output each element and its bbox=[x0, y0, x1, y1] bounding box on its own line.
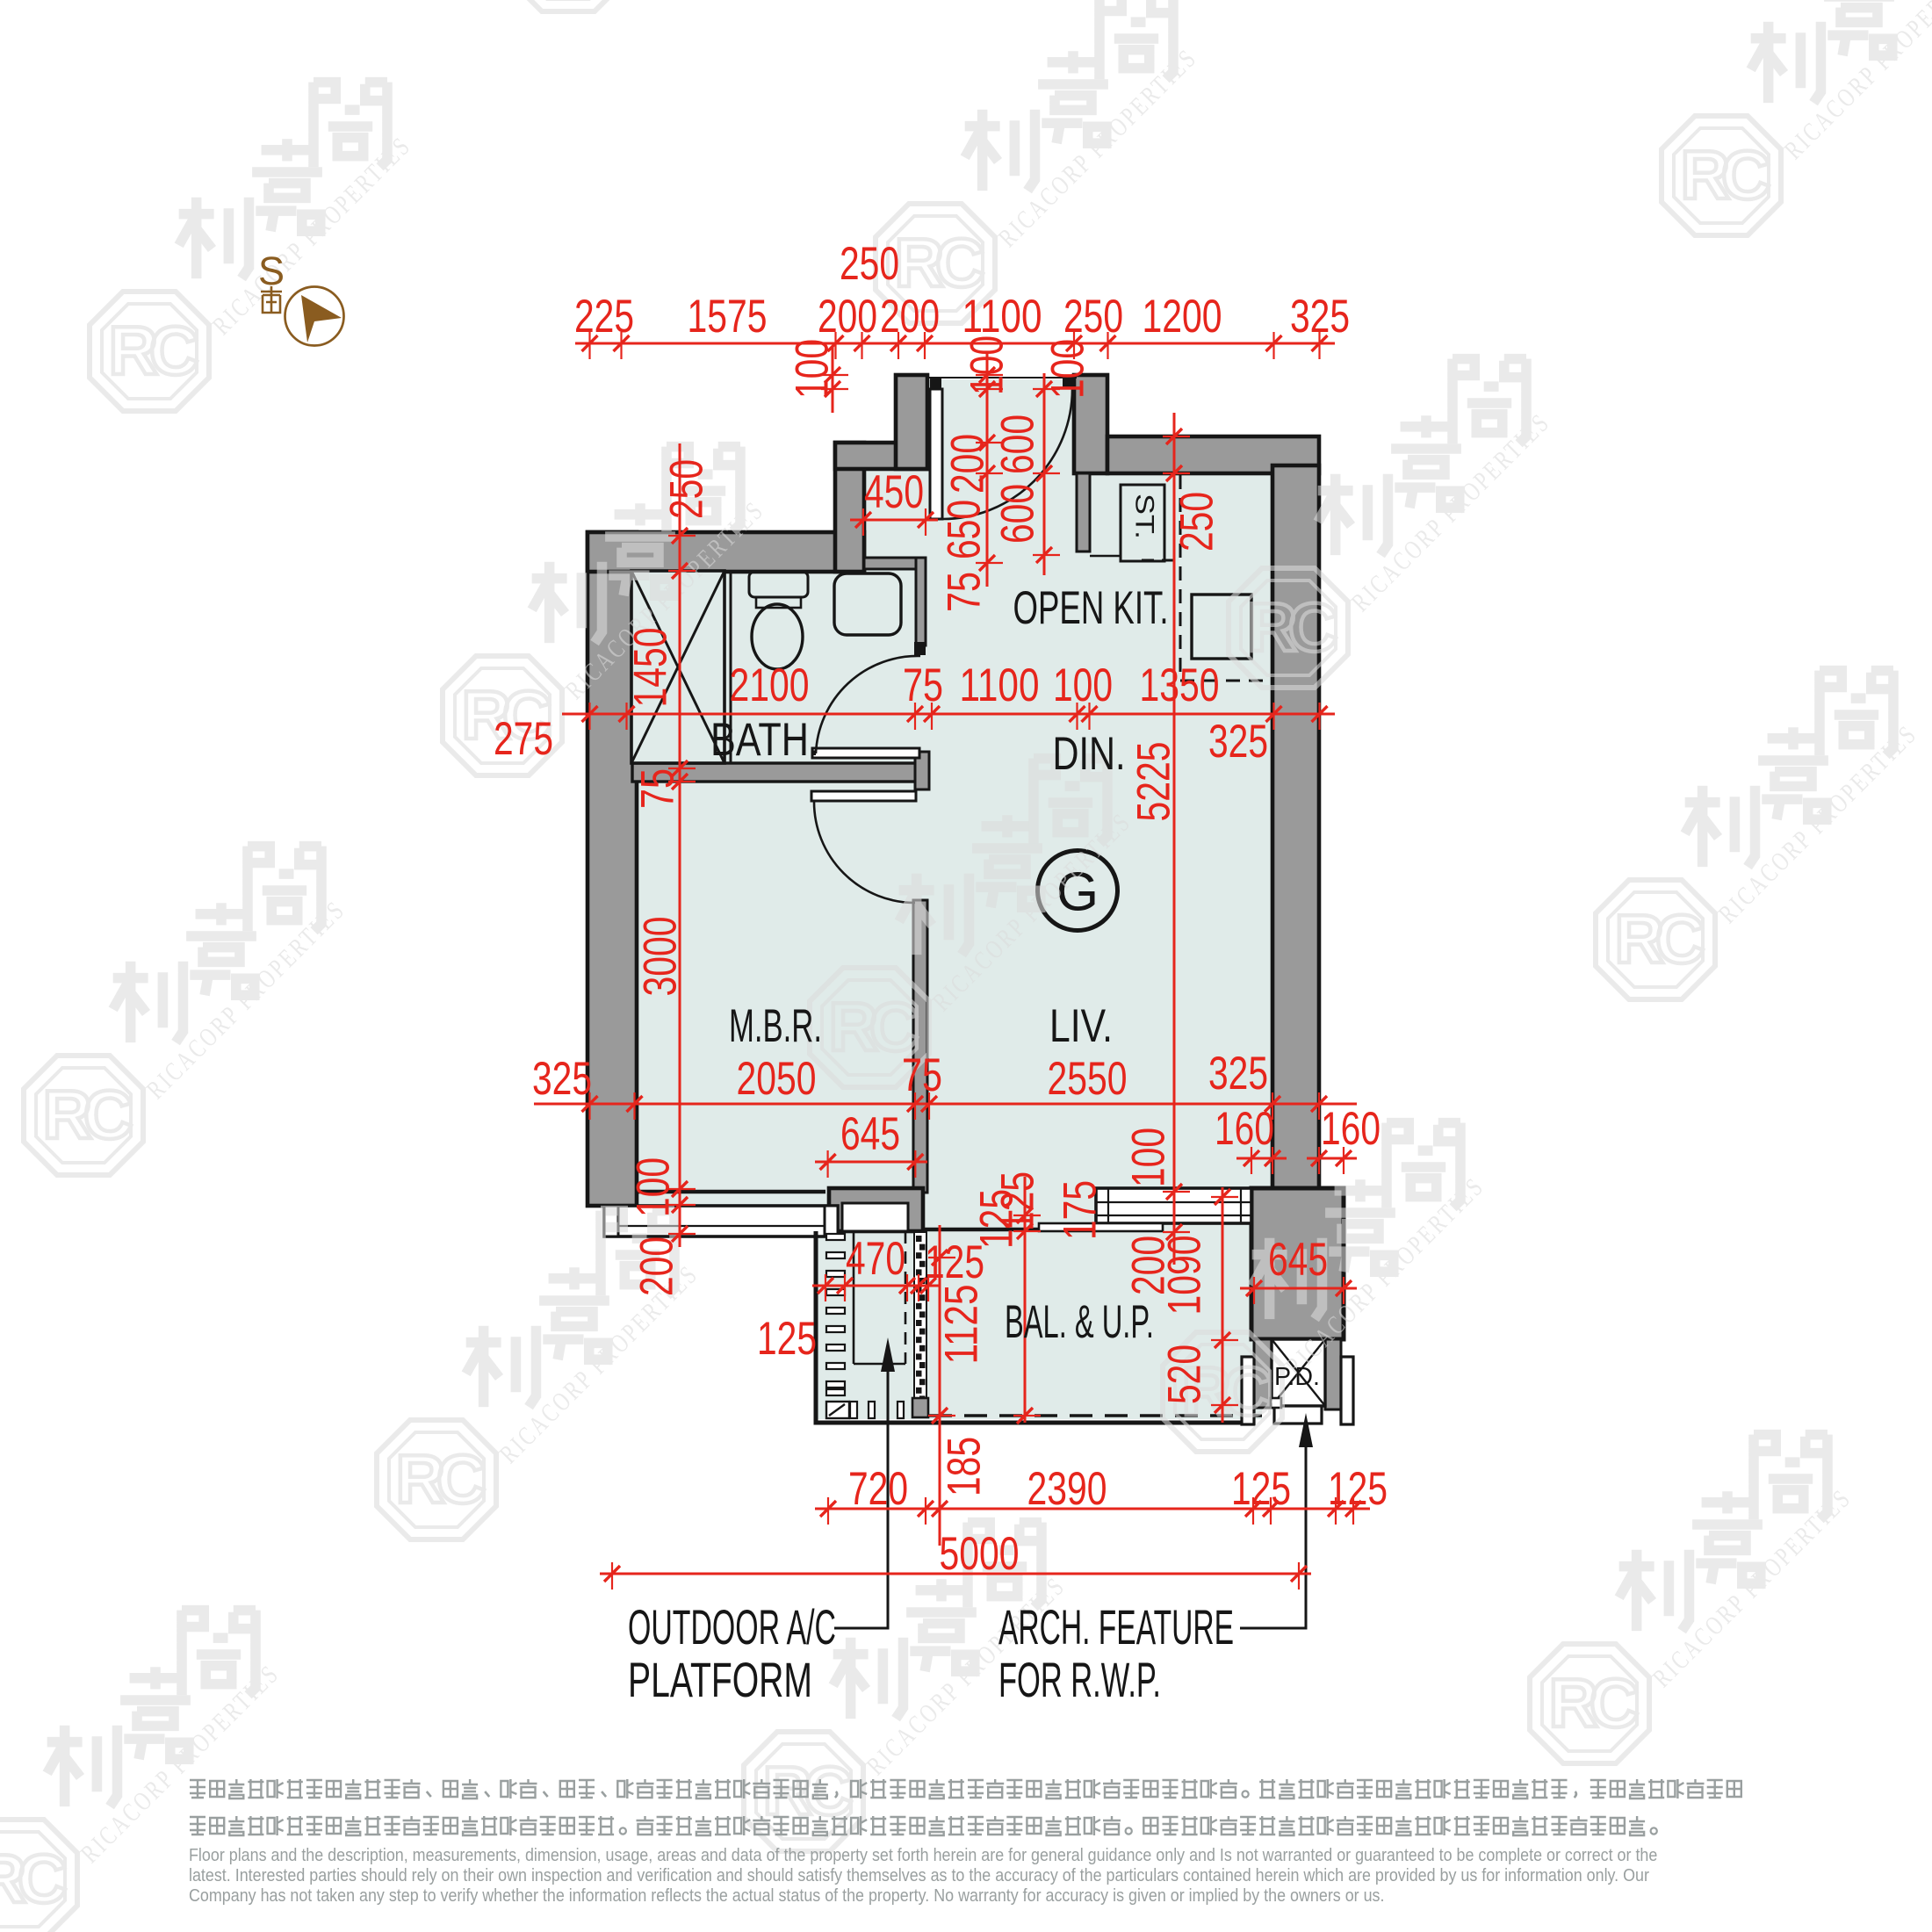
svg-text:250: 250 bbox=[840, 238, 899, 290]
svg-text:125: 125 bbox=[1328, 1463, 1388, 1515]
svg-text:125: 125 bbox=[992, 1171, 1044, 1231]
svg-text:75: 75 bbox=[632, 768, 684, 809]
svg-text:P.D.: P.D. bbox=[1274, 1363, 1320, 1391]
svg-text:LIV.: LIV. bbox=[1049, 1000, 1113, 1052]
svg-text:OUTDOOR A/C: OUTDOOR A/C bbox=[628, 1599, 836, 1654]
svg-text:720: 720 bbox=[848, 1463, 908, 1515]
svg-text:75: 75 bbox=[903, 660, 943, 711]
svg-text:650: 650 bbox=[939, 500, 991, 559]
svg-text:100: 100 bbox=[962, 335, 1013, 395]
svg-text:FOR R.W.P.: FOR R.W.P. bbox=[998, 1652, 1161, 1707]
svg-text:100: 100 bbox=[628, 1157, 680, 1217]
svg-text:470: 470 bbox=[846, 1233, 905, 1285]
svg-text:1100: 1100 bbox=[962, 291, 1042, 342]
svg-text:2550: 2550 bbox=[1048, 1053, 1128, 1105]
svg-text:125: 125 bbox=[1231, 1463, 1291, 1515]
svg-text:OPEN KIT.: OPEN KIT. bbox=[1013, 582, 1169, 634]
svg-text:325: 325 bbox=[1290, 291, 1350, 342]
svg-text:DIN.: DIN. bbox=[1053, 728, 1126, 780]
svg-text:1350: 1350 bbox=[1140, 660, 1220, 711]
svg-text:275: 275 bbox=[494, 713, 553, 765]
svg-text:325: 325 bbox=[1208, 1048, 1268, 1099]
svg-text:BAL. & U.P.: BAL. & U.P. bbox=[1005, 1296, 1154, 1348]
svg-text:520: 520 bbox=[1159, 1344, 1211, 1404]
svg-text:645: 645 bbox=[840, 1108, 900, 1160]
svg-text:75: 75 bbox=[902, 1049, 942, 1101]
svg-text:325: 325 bbox=[532, 1053, 592, 1105]
svg-text:100: 100 bbox=[1042, 339, 1094, 399]
svg-text:1090: 1090 bbox=[1159, 1236, 1211, 1316]
svg-text:1200: 1200 bbox=[1143, 291, 1222, 342]
svg-text:1450: 1450 bbox=[625, 628, 677, 708]
svg-text:250: 250 bbox=[1171, 492, 1223, 551]
svg-text:125: 125 bbox=[757, 1313, 817, 1365]
svg-text:2390: 2390 bbox=[1027, 1463, 1107, 1515]
svg-text:2050: 2050 bbox=[737, 1053, 817, 1105]
svg-text:175: 175 bbox=[1055, 1180, 1107, 1240]
svg-text:ARCH. FEATURE: ARCH. FEATURE bbox=[998, 1599, 1234, 1654]
svg-text:3000: 3000 bbox=[635, 917, 687, 997]
svg-text:200: 200 bbox=[880, 291, 940, 342]
svg-text:200: 200 bbox=[942, 434, 994, 494]
svg-text:160: 160 bbox=[1321, 1103, 1381, 1155]
svg-text:100: 100 bbox=[787, 339, 839, 399]
svg-text:100: 100 bbox=[1123, 1128, 1175, 1187]
svg-text:PLATFORM: PLATFORM bbox=[628, 1652, 812, 1707]
svg-text:M.B.R.: M.B.R. bbox=[729, 1000, 822, 1052]
svg-text:450: 450 bbox=[864, 466, 924, 518]
svg-text:200: 200 bbox=[818, 291, 877, 342]
svg-text:645: 645 bbox=[1268, 1234, 1328, 1286]
svg-text:1100: 1100 bbox=[960, 660, 1040, 711]
svg-text:225: 225 bbox=[574, 291, 634, 342]
svg-text:5000: 5000 bbox=[940, 1528, 1020, 1580]
svg-text:5225: 5225 bbox=[1128, 742, 1180, 822]
svg-text:160: 160 bbox=[1215, 1103, 1274, 1155]
svg-text:BATH.: BATH. bbox=[710, 714, 819, 766]
svg-text:100: 100 bbox=[1053, 660, 1113, 711]
svg-text:185: 185 bbox=[939, 1437, 991, 1496]
svg-text:1575: 1575 bbox=[688, 291, 768, 342]
svg-text:600: 600 bbox=[992, 415, 1044, 474]
svg-text:325: 325 bbox=[1208, 716, 1268, 768]
svg-text:2100: 2100 bbox=[730, 660, 810, 711]
svg-text:1125: 1125 bbox=[936, 1285, 988, 1365]
svg-text:250: 250 bbox=[661, 459, 713, 519]
svg-text:250: 250 bbox=[1063, 291, 1123, 342]
svg-text:200: 200 bbox=[631, 1236, 683, 1296]
svg-text:75: 75 bbox=[939, 572, 991, 612]
svg-text:ST.: ST. bbox=[1130, 494, 1159, 539]
svg-text:600: 600 bbox=[992, 484, 1044, 544]
